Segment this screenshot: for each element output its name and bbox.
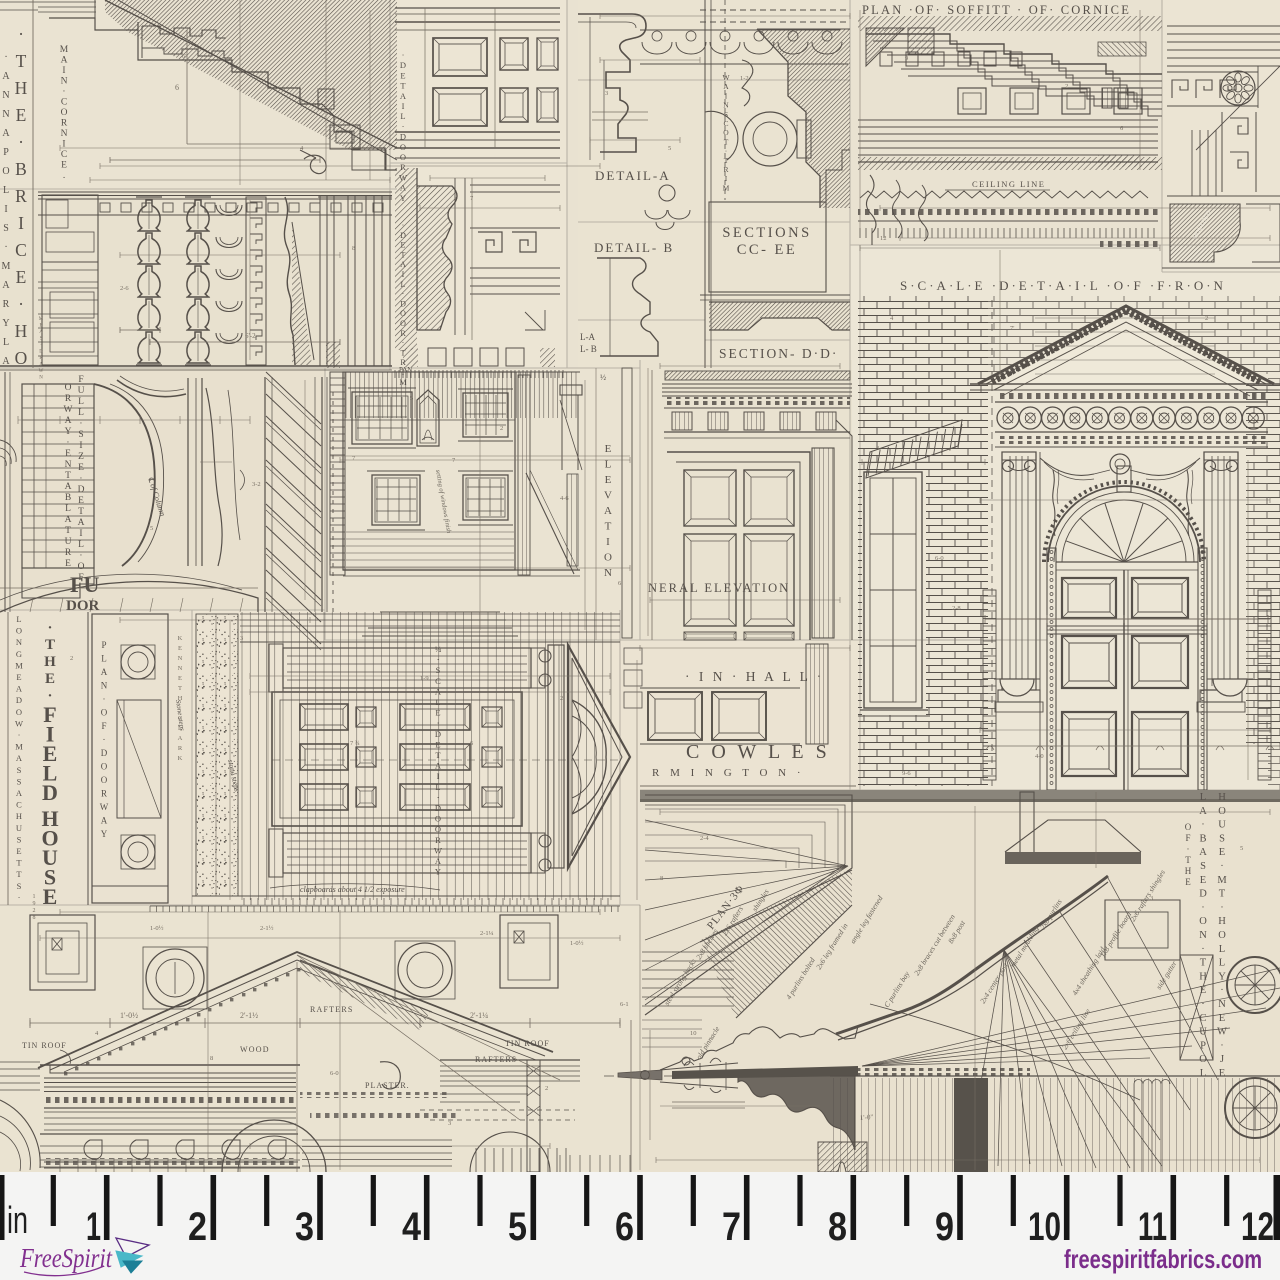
svg-text:A: A xyxy=(435,856,442,866)
svg-text:DETAIL-A: DETAIL-A xyxy=(595,168,671,183)
svg-text:J: J xyxy=(1220,1054,1224,1065)
svg-text:10: 10 xyxy=(690,1030,697,1037)
svg-text:FU: FU xyxy=(70,572,99,597)
svg-text:R: R xyxy=(178,745,183,752)
svg-text:E: E xyxy=(1185,877,1191,887)
svg-text:2: 2 xyxy=(1065,83,1068,90)
svg-text:R: R xyxy=(435,835,441,845)
svg-text:1-2: 1-2 xyxy=(740,75,749,82)
svg-text:10: 10 xyxy=(1028,1205,1061,1249)
svg-text:·: · xyxy=(47,620,52,636)
svg-text:W: W xyxy=(1217,1027,1227,1038)
svg-text:O: O xyxy=(16,707,22,717)
svg-text:S: S xyxy=(3,223,9,234)
svg-text:2: 2 xyxy=(545,1085,548,1092)
svg-text:I: I xyxy=(79,441,82,451)
svg-text:L: L xyxy=(401,280,406,289)
svg-text:N: N xyxy=(2,109,9,120)
svg-text:D: D xyxy=(400,132,406,142)
svg-text:O: O xyxy=(101,775,108,785)
svg-text:O: O xyxy=(1218,930,1226,941)
svg-text:N: N xyxy=(1199,930,1207,941)
svg-text:Z: Z xyxy=(78,452,84,462)
svg-text:P: P xyxy=(1200,1040,1206,1051)
svg-text:·: · xyxy=(437,792,440,802)
svg-text:E: E xyxy=(178,675,182,682)
svg-text:3-2: 3-2 xyxy=(252,481,261,488)
svg-text:I: I xyxy=(79,529,82,539)
svg-text:D: D xyxy=(101,748,108,758)
svg-text:D: D xyxy=(400,231,406,240)
svg-text:L: L xyxy=(101,654,107,664)
svg-text:L: L xyxy=(435,782,440,792)
svg-text:E: E xyxy=(16,846,21,856)
svg-text:·: · xyxy=(18,24,24,44)
svg-text:E: E xyxy=(43,884,58,909)
svg-text:E: E xyxy=(39,324,42,329)
svg-text:5: 5 xyxy=(508,1205,527,1249)
svg-text:L: L xyxy=(78,397,84,407)
svg-text:·: · xyxy=(66,438,69,448)
svg-text:R: R xyxy=(65,394,72,404)
svg-text:O: O xyxy=(1185,822,1192,832)
svg-text:Y: Y xyxy=(435,867,441,877)
svg-text:·: · xyxy=(402,121,405,131)
svg-text:M: M xyxy=(723,183,730,192)
svg-text:·: · xyxy=(437,655,440,665)
svg-text:H: H xyxy=(44,654,56,670)
svg-text:L: L xyxy=(78,540,84,550)
svg-text:1'-0½: 1'-0½ xyxy=(120,1011,138,1020)
svg-text:·: · xyxy=(18,730,21,740)
svg-text:N: N xyxy=(178,655,183,662)
svg-text:S: S xyxy=(17,881,22,891)
svg-text:A: A xyxy=(400,260,406,269)
svg-text:D: D xyxy=(78,485,85,495)
svg-text:O: O xyxy=(400,309,406,318)
svg-text:DETAIL- B: DETAIL- B xyxy=(594,240,674,255)
svg-text:T: T xyxy=(1185,855,1191,865)
svg-text:2-6: 2-6 xyxy=(120,285,129,292)
svg-text:·: · xyxy=(1201,820,1205,831)
svg-text:6: 6 xyxy=(175,83,179,92)
svg-text:B: B xyxy=(65,493,71,503)
svg-text:S: S xyxy=(40,337,43,342)
svg-text:T: T xyxy=(401,348,406,357)
svg-text:T: T xyxy=(605,521,612,533)
svg-text:E: E xyxy=(65,559,71,569)
svg-text:N: N xyxy=(61,77,68,87)
svg-text:E: E xyxy=(400,70,405,80)
svg-text:½: ½ xyxy=(600,373,606,382)
svg-text:E: E xyxy=(78,463,84,473)
svg-text:·: · xyxy=(1220,861,1224,872)
svg-text:2: 2 xyxy=(560,695,563,702)
svg-text:·: · xyxy=(1201,944,1205,955)
svg-text:W: W xyxy=(100,802,109,812)
svg-text:12: 12 xyxy=(1241,1205,1274,1249)
svg-text:E: E xyxy=(435,708,440,718)
svg-text:P: P xyxy=(3,147,9,158)
svg-text:L: L xyxy=(1200,1068,1206,1079)
svg-text:2: 2 xyxy=(1205,315,1208,322)
svg-text:L: L xyxy=(78,408,84,418)
svg-text:H: H xyxy=(15,78,28,98)
svg-text:8: 8 xyxy=(210,1055,213,1062)
svg-text:H: H xyxy=(1218,792,1226,803)
svg-text:A: A xyxy=(2,71,10,82)
svg-text:R: R xyxy=(61,119,68,129)
svg-text:S: S xyxy=(724,110,728,119)
svg-text:·: · xyxy=(103,735,106,745)
svg-text:¼: ¼ xyxy=(435,644,441,654)
svg-text:CC- EE: CC- EE xyxy=(737,242,798,258)
svg-text:M: M xyxy=(2,261,11,272)
svg-text:·: · xyxy=(79,419,82,429)
svg-text:O: O xyxy=(400,319,406,328)
svg-text:12: 12 xyxy=(880,235,887,242)
svg-text:H: H xyxy=(15,321,28,341)
svg-text:.: . xyxy=(63,171,65,181)
svg-text:S: S xyxy=(17,765,22,775)
svg-text:6': 6' xyxy=(182,53,186,60)
svg-text:2: 2 xyxy=(70,655,73,662)
svg-text:7: 7 xyxy=(722,1205,741,1249)
svg-text:·: · xyxy=(18,294,24,314)
svg-text:2-1½: 2-1½ xyxy=(260,925,274,932)
svg-text:CEILING LINE: CEILING LINE xyxy=(972,179,1045,189)
svg-text:·: · xyxy=(4,242,7,253)
svg-text:in: in xyxy=(7,1200,28,1242)
svg-text:A: A xyxy=(1199,847,1207,858)
svg-text:T: T xyxy=(1219,889,1226,900)
svg-text:E: E xyxy=(78,496,84,506)
svg-text:H: H xyxy=(16,811,22,821)
svg-text:T: T xyxy=(65,526,71,536)
svg-text:D: D xyxy=(400,299,406,308)
svg-text:H: H xyxy=(1218,916,1226,927)
svg-text:D: D xyxy=(42,780,58,805)
svg-text:R: R xyxy=(723,165,728,174)
svg-text:4-6: 4-6 xyxy=(560,495,569,502)
svg-text:6-1: 6-1 xyxy=(620,1001,629,1008)
svg-text:F: F xyxy=(101,721,106,731)
svg-text:A: A xyxy=(178,735,183,742)
svg-text:L: L xyxy=(3,337,9,348)
svg-text:T: T xyxy=(16,858,22,868)
svg-text:T: T xyxy=(78,507,84,517)
svg-text:A: A xyxy=(2,280,10,291)
svg-text:O: O xyxy=(78,562,85,572)
svg-text:Y: Y xyxy=(2,318,9,329)
svg-text:N: N xyxy=(16,637,22,647)
svg-text:L: L xyxy=(400,111,405,121)
svg-text:E: E xyxy=(605,474,612,486)
svg-text:E: E xyxy=(1219,1068,1225,1079)
svg-text:9: 9 xyxy=(935,1205,954,1249)
svg-text:O: O xyxy=(723,128,729,137)
svg-text:O: O xyxy=(1218,806,1226,817)
svg-text:S: S xyxy=(1200,861,1206,872)
svg-text:·: · xyxy=(402,290,405,299)
svg-text:O: O xyxy=(61,108,68,118)
svg-text:TIN ROOF: TIN ROOF xyxy=(22,1041,67,1050)
svg-text:C: C xyxy=(435,676,441,686)
svg-text:O: O xyxy=(1199,916,1207,927)
svg-text:U: U xyxy=(1218,820,1226,831)
svg-text:T: T xyxy=(178,685,182,692)
svg-text:T: T xyxy=(435,750,441,760)
svg-text:L: L xyxy=(65,504,71,514)
svg-text:M: M xyxy=(399,378,406,387)
svg-text:·: · xyxy=(103,694,106,704)
svg-text:3: 3 xyxy=(295,1205,314,1249)
svg-text:A: A xyxy=(101,816,108,826)
svg-text:R: R xyxy=(65,548,72,558)
svg-text:D: D xyxy=(39,350,43,355)
svg-text:M: M xyxy=(15,742,23,752)
svg-text:K: K xyxy=(178,635,183,642)
svg-text:O: O xyxy=(400,152,406,162)
svg-text:M: M xyxy=(1217,875,1227,886)
svg-text:M: M xyxy=(39,317,44,322)
svg-text:L- B: L- B xyxy=(580,344,597,354)
svg-text:R: R xyxy=(3,299,10,310)
svg-text:C: C xyxy=(723,119,728,128)
svg-text:S: S xyxy=(436,665,441,675)
svg-text:C: C xyxy=(16,800,22,810)
svg-text:C: C xyxy=(1199,1013,1206,1024)
svg-text:A: A xyxy=(65,482,72,492)
svg-text:·: · xyxy=(1220,985,1224,996)
svg-text:N: N xyxy=(723,101,729,110)
svg-text:T: T xyxy=(401,250,406,259)
svg-text:E: E xyxy=(605,443,612,455)
svg-text:D: D xyxy=(1199,889,1207,900)
svg-text:3: 3 xyxy=(876,445,879,452)
svg-text:1-0½: 1-0½ xyxy=(570,940,584,947)
svg-text:D: D xyxy=(435,729,441,739)
svg-text:5: 5 xyxy=(150,525,153,532)
svg-text:NERAL ELEVATION: NERAL ELEVATION xyxy=(648,581,790,595)
svg-text:5: 5 xyxy=(668,145,671,152)
svg-text:3: 3 xyxy=(240,635,243,642)
svg-text:I: I xyxy=(62,66,65,76)
svg-text:R: R xyxy=(400,162,406,172)
svg-text:11: 11 xyxy=(1138,1205,1167,1249)
svg-text:W: W xyxy=(15,718,23,728)
svg-text:DOR: DOR xyxy=(66,598,100,614)
svg-text:I: I xyxy=(437,771,440,781)
svg-text:K: K xyxy=(178,755,183,762)
svg-text:G: G xyxy=(16,649,22,659)
svg-text:S: S xyxy=(17,776,22,786)
svg-text:C: C xyxy=(15,240,27,260)
svg-text:I: I xyxy=(606,536,610,548)
svg-text:·: · xyxy=(4,52,7,63)
svg-text:V: V xyxy=(604,490,612,502)
svg-text:·: · xyxy=(79,474,82,484)
svg-text:A: A xyxy=(65,416,72,426)
svg-text:· I N · H A L L ·: · I N · H A L L · xyxy=(685,669,824,684)
svg-text:6-0: 6-0 xyxy=(330,1070,339,1077)
svg-text:A: A xyxy=(1199,806,1207,817)
svg-text:·: · xyxy=(437,718,440,728)
svg-text:E: E xyxy=(61,161,67,171)
svg-text:R: R xyxy=(101,789,107,799)
svg-text:O: O xyxy=(101,762,108,772)
svg-text:9: 9 xyxy=(33,901,36,907)
svg-text:WOOD: WOOD xyxy=(240,1045,270,1054)
svg-text:4: 4 xyxy=(402,1205,422,1249)
svg-text:2'-1¼: 2'-1¼ xyxy=(470,1011,488,1020)
svg-text:D: D xyxy=(16,695,22,705)
svg-text:U: U xyxy=(65,537,72,547)
svg-text:·: · xyxy=(402,339,405,348)
svg-text:E: E xyxy=(16,672,21,682)
svg-text:8: 8 xyxy=(352,245,355,252)
svg-text:H: H xyxy=(1185,866,1192,876)
svg-text:T: T xyxy=(16,869,22,879)
svg-text:U: U xyxy=(16,823,22,833)
svg-text:A: A xyxy=(16,684,23,694)
svg-text:A: A xyxy=(435,686,442,696)
svg-text:A: A xyxy=(16,753,23,763)
svg-text:D: D xyxy=(435,803,441,813)
svg-text:L: L xyxy=(3,185,9,196)
svg-text:A: A xyxy=(101,667,108,677)
svg-text:Y: Y xyxy=(101,829,108,839)
svg-text:C O W L E S: C O W L E S xyxy=(686,741,830,763)
svg-text:9-6: 9-6 xyxy=(902,770,911,777)
svg-text:SECTION- D·D·: SECTION- D·D· xyxy=(719,346,838,361)
svg-text:2: 2 xyxy=(33,908,36,914)
svg-text:N: N xyxy=(65,460,72,470)
svg-text:N: N xyxy=(178,665,183,672)
svg-text:A: A xyxy=(435,761,442,771)
svg-text:A: A xyxy=(16,788,23,798)
svg-text:4-0: 4-0 xyxy=(1035,753,1044,760)
svg-text:L: L xyxy=(16,614,21,624)
svg-text:N: N xyxy=(2,90,9,101)
svg-text:O: O xyxy=(1199,1054,1207,1065)
svg-text:A: A xyxy=(65,515,72,525)
svg-text:clapboards about 4 1/2 exposur: clapboards about 4 1/2 exposure xyxy=(300,885,405,894)
svg-text:F: F xyxy=(1185,833,1190,843)
svg-text:T: T xyxy=(400,81,406,91)
svg-text:E: E xyxy=(16,105,27,125)
svg-text:T: T xyxy=(45,637,55,653)
svg-text:B: B xyxy=(1199,833,1206,844)
svg-text:9: 9 xyxy=(905,55,908,62)
svg-text:A: A xyxy=(2,128,10,139)
svg-text:M: M xyxy=(15,660,23,670)
svg-text:S·C·A·L·E ·D·E·T·A·I·L ·O·F ·F: S·C·A·L·E ·D·E·T·A·I·L ·O·F ·F·R·O·N xyxy=(900,278,1226,293)
svg-text:B: B xyxy=(15,159,27,179)
svg-text:Y: Y xyxy=(400,193,406,203)
svg-text:RAFTERS: RAFTERS xyxy=(310,1005,354,1014)
svg-text:A: A xyxy=(400,91,407,101)
svg-text:2'-1½: 2'-1½ xyxy=(240,1011,258,1020)
svg-text:E: E xyxy=(45,671,55,687)
svg-text:L: L xyxy=(605,459,612,471)
svg-text:N: N xyxy=(101,681,108,691)
svg-text:1: 1 xyxy=(33,894,36,900)
svg-text:·: · xyxy=(62,87,65,97)
svg-text:E: E xyxy=(1219,847,1225,858)
svg-text:W: W xyxy=(64,405,73,415)
svg-text:N: N xyxy=(39,376,43,381)
svg-text:PLAN ·OF· SOFFITT · OF· CORNIC: PLAN ·OF· SOFFITT · OF· CORNICE xyxy=(862,3,1131,17)
svg-text:T: T xyxy=(724,137,729,146)
svg-text:T: T xyxy=(16,51,27,71)
svg-text:freespiritfabrics.com: freespiritfabrics.com xyxy=(1064,1244,1262,1274)
svg-text:I: I xyxy=(18,213,24,233)
svg-text:U: U xyxy=(1199,1027,1207,1038)
svg-text:A: A xyxy=(400,183,407,193)
svg-text:L-A: L-A xyxy=(580,332,595,342)
svg-text:A: A xyxy=(604,505,612,517)
svg-text:2-1¼: 2-1¼ xyxy=(480,930,494,937)
svg-text:A: A xyxy=(723,82,729,91)
svg-text:2: 2 xyxy=(500,425,503,432)
svg-text:O: O xyxy=(435,814,441,824)
svg-text:8: 8 xyxy=(828,1205,847,1249)
svg-text:O: O xyxy=(15,348,28,368)
svg-text:S: S xyxy=(17,834,22,844)
svg-text:N: N xyxy=(61,129,68,139)
svg-text:O: O xyxy=(16,626,22,636)
svg-text:E: E xyxy=(1219,1013,1225,1024)
svg-text:R M I N G T O N ·: R M I N G T O N · xyxy=(652,767,805,779)
svg-text:N: N xyxy=(604,567,612,579)
svg-text:A: A xyxy=(39,330,43,335)
svg-text:C: C xyxy=(61,150,67,160)
svg-text:5: 5 xyxy=(410,395,413,402)
svg-text:A: A xyxy=(61,56,68,66)
svg-text:T: T xyxy=(1200,958,1207,969)
svg-text:·: · xyxy=(1220,902,1224,913)
svg-text:F: F xyxy=(78,375,83,385)
svg-text:O: O xyxy=(2,166,9,177)
svg-text:O: O xyxy=(65,383,72,393)
svg-text:2-4: 2-4 xyxy=(700,835,709,842)
svg-text:2-8: 2-8 xyxy=(952,605,961,612)
svg-text:8: 8 xyxy=(33,915,36,921)
svg-text:P: P xyxy=(101,640,106,650)
svg-text:O: O xyxy=(101,708,108,718)
svg-text:E: E xyxy=(1200,875,1206,886)
svg-text:L: L xyxy=(1200,792,1206,803)
svg-text:7 ¾: 7 ¾ xyxy=(350,740,360,747)
svg-text:A: A xyxy=(39,363,43,368)
svg-text:W: W xyxy=(399,172,407,182)
svg-text:A: A xyxy=(2,356,10,367)
svg-text:·: · xyxy=(1220,1040,1224,1051)
svg-text:E: E xyxy=(435,739,440,749)
svg-text:E: E xyxy=(178,645,182,652)
svg-text:·: · xyxy=(1187,844,1190,854)
svg-text:R: R xyxy=(400,329,406,338)
svg-text:O: O xyxy=(400,142,406,152)
svg-text:L: L xyxy=(435,697,440,707)
svg-text:U: U xyxy=(78,386,85,396)
svg-text:N: N xyxy=(1218,999,1226,1010)
svg-text:O: O xyxy=(604,552,612,564)
svg-text:8: 8 xyxy=(660,875,663,882)
svg-text:3: 3 xyxy=(1150,895,1153,902)
svg-text:E: E xyxy=(16,267,27,287)
